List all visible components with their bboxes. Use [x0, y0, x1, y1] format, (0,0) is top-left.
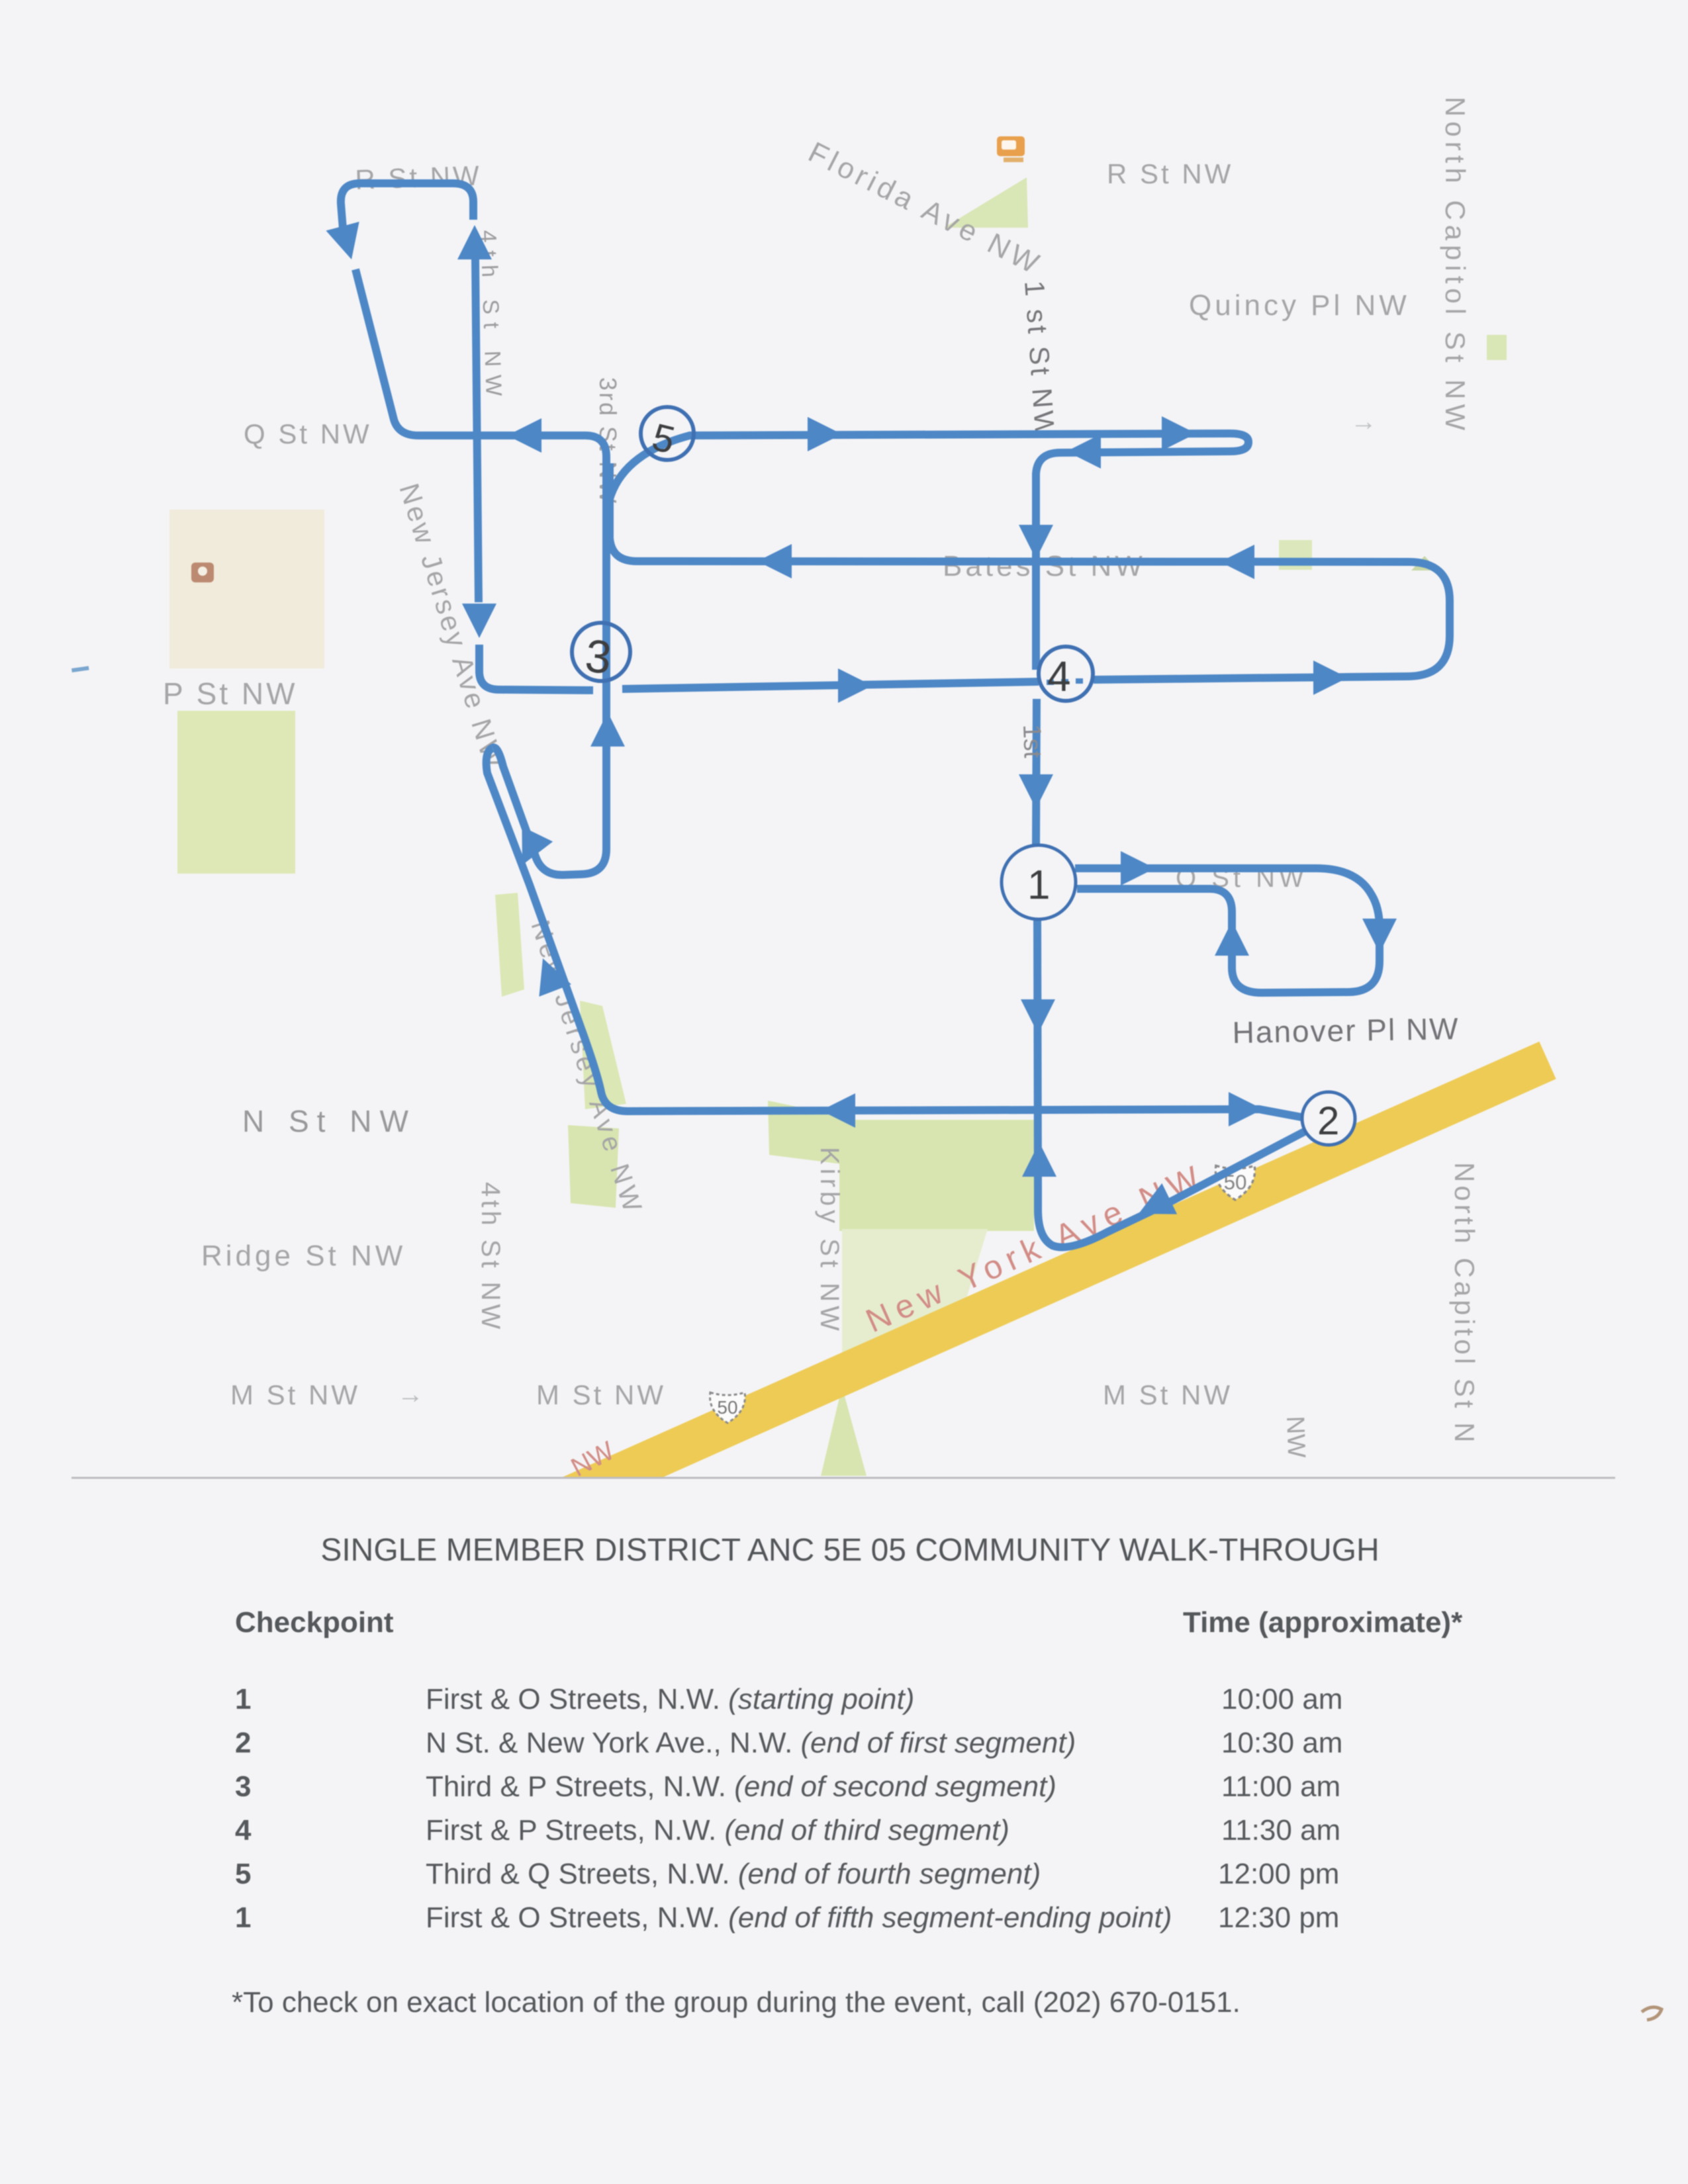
svg-text:→: →: [397, 1380, 424, 1409]
svg-text:N St NW: N St NW: [242, 1104, 416, 1138]
svg-text:4: 4: [1047, 653, 1071, 700]
svg-text:First & O Streets, N.W. (end o: First & O Streets, N.W. (end of fifth se…: [426, 1901, 1172, 1934]
svg-text:Third & P Streets, N.W. (end o: Third & P Streets, N.W. (end of second s…: [426, 1770, 1056, 1803]
svg-text:M St NW: M St NW: [1103, 1379, 1233, 1410]
svg-text:12:00 pm: 12:00 pm: [1218, 1858, 1339, 1890]
svg-text:3: 3: [583, 629, 614, 684]
svg-text:Bates St NW: Bates St NW: [943, 550, 1146, 582]
svg-text:10:00 am: 10:00 am: [1221, 1683, 1342, 1715]
svg-text:R St NW: R St NW: [1107, 158, 1233, 189]
svg-text:1st: 1st: [1017, 724, 1047, 759]
svg-text:R St NW: R St NW: [355, 159, 483, 195]
svg-text:2: 2: [1317, 1099, 1339, 1143]
svg-text:4th St NW: 4th St NW: [476, 1182, 505, 1332]
svg-text:1: 1: [1027, 862, 1050, 908]
svg-text:5: 5: [235, 1858, 251, 1890]
svg-text:12:30 pm: 12:30 pm: [1218, 1901, 1339, 1934]
svg-text:M St NW: M St NW: [536, 1379, 666, 1410]
svg-text:11:30 am: 11:30 am: [1221, 1814, 1340, 1846]
svg-text:Hanover Pl NW: Hanover Pl NW: [1232, 1011, 1460, 1050]
svg-text:11:00 am: 11:00 am: [1221, 1770, 1340, 1803]
svg-text:Third & Q Streets, N.W. (end o: Third & Q Streets, N.W. (end of fourth s…: [426, 1858, 1041, 1890]
svg-text:N St. & New York Ave., N.W. (e: N St. & New York Ave., N.W. (end of firs…: [426, 1727, 1076, 1759]
svg-text:1: 1: [235, 1901, 251, 1934]
svg-text:Time (approximate)*: Time (approximate)*: [1183, 1606, 1463, 1639]
svg-text:*To check on exact location of: *To check on exact location of the group…: [232, 1986, 1241, 2019]
svg-text:3: 3: [235, 1770, 251, 1803]
svg-text:North Capitol St NW: North Capitol St NW: [1440, 97, 1471, 435]
svg-text:First & P Streets, N.W. (end o: First & P Streets, N.W. (end of third se…: [426, 1814, 1009, 1846]
svg-text:Checkpoint: Checkpoint: [235, 1606, 394, 1639]
svg-text:1: 1: [235, 1683, 251, 1715]
svg-text:10:30 am: 10:30 am: [1221, 1727, 1342, 1759]
svg-text:First & O Streets, N.W. (start: First & O Streets, N.W. (starting point): [426, 1683, 914, 1715]
svg-text:North Capitol St N: North Capitol St N: [1449, 1162, 1480, 1445]
svg-text:Ridge St NW: Ridge St NW: [201, 1240, 406, 1272]
svg-text:NW: NW: [1281, 1416, 1310, 1459]
svg-text:Kirby St NW: Kirby St NW: [815, 1147, 844, 1335]
svg-text:50: 50: [717, 1397, 737, 1418]
svg-text:M St NW: M St NW: [230, 1379, 360, 1410]
svg-text:4: 4: [235, 1814, 252, 1846]
svg-text:SINGLE MEMBER DISTRICT ANC 5E: SINGLE MEMBER DISTRICT ANC 5E 05 COMMUNI…: [320, 1533, 1379, 1568]
svg-text:2: 2: [235, 1727, 251, 1759]
svg-text:P St NW: P St NW: [163, 676, 298, 711]
svg-text:Quincy Pl NW: Quincy Pl NW: [1189, 289, 1410, 322]
svg-text:→: →: [1350, 407, 1377, 436]
svg-text:Q St NW: Q St NW: [244, 418, 372, 449]
